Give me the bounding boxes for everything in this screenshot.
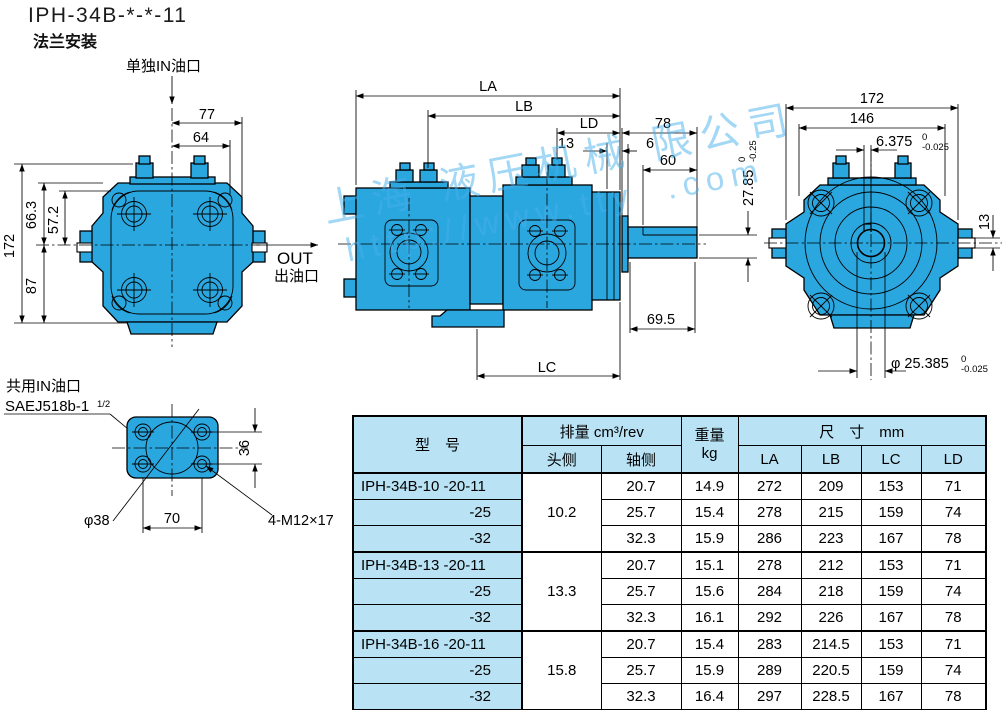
cell-ld: 78: [921, 526, 986, 553]
in-port-label: 单独IN油口: [126, 58, 201, 75]
dim-LD: LD: [580, 116, 599, 132]
cell-shaft-disp: 32.3: [601, 605, 681, 632]
table-row: -32 32.3 15.9 286 223 167 78: [353, 526, 986, 553]
cell-model: IPH-34B-10 -20-11: [353, 473, 522, 500]
cell-la: 297: [738, 684, 801, 710]
dim-keyway: 6.375: [876, 134, 912, 150]
cell-model: IPH-34B-13 -20-11: [353, 552, 522, 579]
cell-ld: 71: [921, 473, 986, 500]
dim-36: 36: [237, 440, 253, 456]
rear-pump-body: [772, 156, 972, 328]
cell-head-disp: 15.8: [522, 631, 601, 710]
dim-172-rear: 172: [860, 91, 884, 107]
dim-69-5: 69.5: [647, 312, 675, 328]
cell-model: -32: [353, 605, 522, 632]
cell-lb: 220.5: [801, 658, 861, 684]
header-weight: 重量 kg: [681, 416, 738, 473]
cell-weight: 15.9: [681, 526, 738, 553]
dim-64: 64: [193, 130, 209, 146]
dim-57-2: 57.2: [46, 206, 62, 234]
cell-lb: 223: [801, 526, 861, 553]
cell-lb: 214.5: [801, 631, 861, 658]
out-port-label: 出油口: [274, 268, 319, 285]
cell-la: 278: [738, 552, 801, 579]
cell-weight: 15.1: [681, 552, 738, 579]
cell-weight: 16.4: [681, 684, 738, 710]
cell-head-disp: 10.2: [522, 473, 601, 552]
cell-shaft-disp: 20.7: [601, 473, 681, 500]
cell-ld: 74: [921, 579, 986, 605]
dim-shaft-tol-lower: -0.025: [961, 364, 988, 375]
header-weight-label: 重量: [682, 427, 738, 444]
header-shaft-side: 轴侧: [601, 446, 681, 474]
cell-model: IPH-34B-16 -20-11: [353, 631, 522, 658]
cell-model: -25: [353, 500, 522, 526]
cell-model: -25: [353, 579, 522, 605]
header-model: 型 号: [353, 416, 522, 473]
cell-shaft-disp: 32.3: [601, 526, 681, 553]
header-LD: LD: [921, 446, 986, 474]
header-head-side: 头侧: [522, 446, 601, 474]
cell-lc: 167: [861, 684, 921, 710]
table-row: -32 32.3 16.4 297 228.5 167 78: [353, 684, 986, 710]
cell-lc: 167: [861, 526, 921, 553]
cell-lc: 159: [861, 579, 921, 605]
dim-bolts: 4-M12×17: [268, 513, 334, 529]
dim-78: 78: [655, 116, 671, 132]
cell-weight: 15.6: [681, 579, 738, 605]
cell-ld: 74: [921, 658, 986, 684]
front-view-drawing: 单独IN油口 OUT 出油口 77 64 172 66.3 57.2 87: [0, 50, 340, 350]
cell-lb: 218: [801, 579, 861, 605]
sae-flange-fraction: 1/2: [97, 399, 110, 410]
header-displacement: 排量 cm³/rev: [522, 416, 681, 446]
cell-shaft-disp: 25.7: [601, 579, 681, 605]
cell-lc: 159: [861, 500, 921, 526]
cell-shaft-disp: 25.7: [601, 658, 681, 684]
cell-lb: 215: [801, 500, 861, 526]
cell-la: 289: [738, 658, 801, 684]
cell-lb: 212: [801, 552, 861, 579]
cell-shaft-disp: 25.7: [601, 500, 681, 526]
dim-6: 6: [646, 136, 654, 152]
dim-13-rear: 13: [977, 214, 993, 230]
spec-table: 型 号 排量 cm³/rev 重量 kg 尺 寸 mm 头侧 轴侧 LA LB …: [352, 415, 987, 710]
table-row: -25 25.7 15.4 278 215 159 74: [353, 500, 986, 526]
cell-ld: 71: [921, 631, 986, 658]
dim-87: 87: [24, 278, 40, 294]
cell-shaft-disp: 20.7: [601, 552, 681, 579]
dim-LB: LB: [515, 99, 533, 115]
cell-la: 272: [738, 473, 801, 500]
cell-lc: 153: [861, 473, 921, 500]
header-LA: LA: [738, 446, 801, 474]
page-title: IPH-34B-*-*-11: [28, 4, 188, 28]
flange-body: [127, 417, 218, 478]
cell-weight: 14.9: [681, 473, 738, 500]
bolt-leader: [206, 466, 272, 515]
header-LB: LB: [801, 446, 861, 474]
cell-model: -32: [353, 526, 522, 553]
cell-lc: 167: [861, 605, 921, 632]
dim-77: 77: [199, 107, 215, 123]
cell-shaft-disp: 32.3: [601, 684, 681, 710]
dim-27-85-tol-upper: 0: [737, 157, 748, 162]
table-row: IPH-34B-13 -20-11 13.3 20.7 15.1 278 212…: [353, 552, 986, 579]
cell-ld: 78: [921, 605, 986, 632]
cell-ld: 71: [921, 552, 986, 579]
cell-lc: 153: [861, 552, 921, 579]
cell-la: 283: [738, 631, 801, 658]
cell-weight: 15.4: [681, 500, 738, 526]
header-LC: LC: [861, 446, 921, 474]
cell-ld: 74: [921, 500, 986, 526]
cell-la: 286: [738, 526, 801, 553]
sae-flange-label: SAEJ518b-1: [5, 398, 89, 415]
cell-lb: 209: [801, 473, 861, 500]
cell-ld: 78: [921, 684, 986, 710]
cell-head-disp: 13.3: [522, 552, 601, 631]
dim-66-3: 66.3: [24, 201, 40, 229]
datasheet-page: IPH-34B-*-*-11 法兰安装: [0, 0, 1007, 710]
right-wing-slot: [252, 243, 267, 252]
table-row: -25 25.7 15.9 289 220.5 159 74: [353, 658, 986, 684]
flange-view-drawing: 共用IN油口 SAEJ518b-1 1/2 φ38 4-M12×17 36: [0, 372, 352, 557]
cell-lb: 226: [801, 605, 861, 632]
header-size: 尺 寸 mm: [738, 416, 986, 446]
left-wing-slot: [77, 243, 92, 252]
dim-LA: LA: [479, 79, 497, 95]
table-row: IPH-34B-16 -20-11 15.8 20.7 15.4 283 214…: [353, 631, 986, 658]
table-row: -32 32.3 16.1 292 226 167 78: [353, 605, 986, 632]
cell-shaft-disp: 20.7: [601, 631, 681, 658]
dim-70: 70: [164, 511, 180, 527]
cell-weight: 15.9: [681, 658, 738, 684]
cell-la: 284: [738, 579, 801, 605]
cell-model: -25: [353, 658, 522, 684]
cell-model: -32: [353, 684, 522, 710]
spec-table-container: 型 号 排量 cm³/rev 重量 kg 尺 寸 mm 头侧 轴侧 LA LB …: [352, 415, 987, 710]
table-row: -25 25.7 15.6 284 218 159 74: [353, 579, 986, 605]
cell-weight: 15.4: [681, 631, 738, 658]
cell-la: 292: [738, 605, 801, 632]
dim-60: 60: [660, 153, 676, 169]
side-view-drawing: LA LB LD 13 6 78 60 27.85 0: [330, 75, 765, 380]
cell-lc: 159: [861, 658, 921, 684]
dim-shaft-dia: φ 25.385: [891, 356, 949, 372]
dim-keyway-tol-lower: -0.025: [922, 142, 949, 153]
side-pump-body: [344, 158, 697, 327]
cell-lb: 228.5: [801, 684, 861, 710]
out-label: OUT: [277, 249, 313, 268]
dim-LC: LC: [538, 360, 557, 376]
cell-la: 278: [738, 500, 801, 526]
table-row: IPH-34B-10 -20-11 10.2 20.7 14.9 272 209…: [353, 473, 986, 500]
dim-13: 13: [558, 136, 574, 152]
dim-146: 146: [850, 111, 874, 127]
dim-38: φ38: [84, 513, 110, 529]
cell-weight: 16.1: [681, 605, 738, 632]
header-weight-unit: kg: [682, 445, 738, 462]
cell-lc: 153: [861, 631, 921, 658]
dim-172: 172: [2, 234, 18, 258]
common-in-port-label: 共用IN油口: [6, 378, 81, 395]
mounting-type-label: 法兰安装: [33, 28, 97, 52]
rear-view-drawing: 172 146 6.375 0 -0.025 13 φ 25.385 0 -0.…: [755, 85, 1007, 385]
